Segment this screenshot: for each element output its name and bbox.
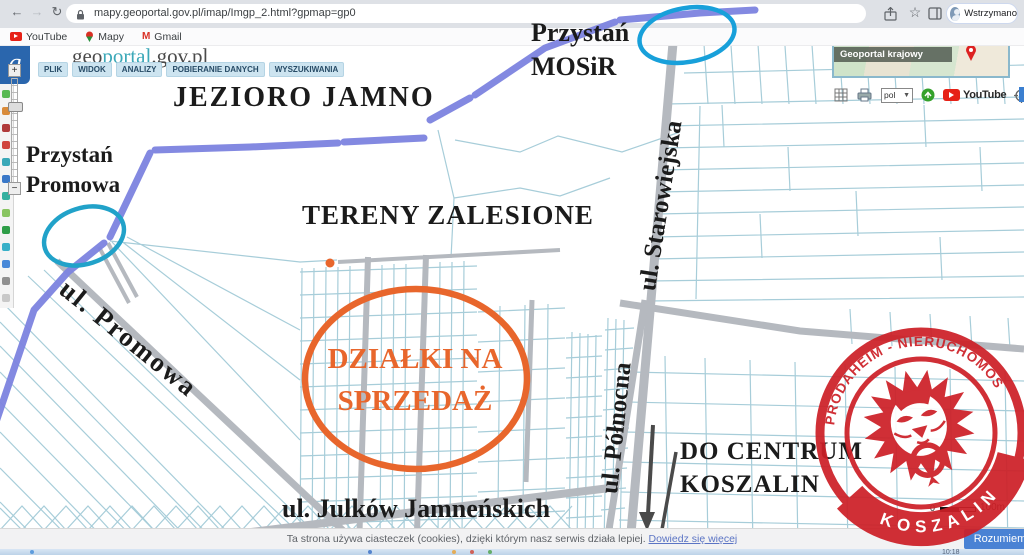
map-canvas[interactable] (0, 0, 1024, 555)
cookie-learn-more-link[interactable]: Dowiedz się więcej (649, 533, 738, 545)
taskbar-icon[interactable] (368, 550, 372, 554)
scale-zero-label: 0 (930, 503, 935, 513)
scale-segment (958, 507, 976, 512)
taskbar-icon[interactable] (470, 550, 474, 554)
taskbar-clock: 10:18 (942, 549, 960, 555)
bookmark-label: Gmail (154, 31, 181, 43)
tool-icon[interactable] (2, 294, 10, 302)
cookie-accept-button[interactable]: Rozumiem (964, 529, 1024, 549)
scale-segment (940, 507, 958, 512)
bookmark-label: Mapy (98, 31, 124, 43)
map-pin-icon (964, 44, 978, 62)
back-icon[interactable]: ← (8, 4, 26, 19)
padlock-icon (76, 9, 85, 20)
language-select[interactable]: pol▼ (881, 88, 913, 103)
cookie-text: Ta strona używa ciasteczek (cookies), dz… (287, 533, 646, 545)
profile-label: Wstrzymano (964, 8, 1017, 19)
gmail-icon: M (142, 31, 150, 42)
os-taskbar[interactable]: 10:18 (0, 549, 1024, 555)
geoportal-menu: PLIK WIDOK ANALIZY POBIERANIE DANYCH WYS… (38, 62, 344, 77)
youtube-link[interactable]: YouTube (943, 89, 1006, 101)
side-panel-icon[interactable] (928, 7, 942, 20)
zoom-handle[interactable] (8, 102, 23, 112)
share-icon[interactable] (884, 7, 897, 21)
layout-grid-icon[interactable] (834, 88, 848, 102)
youtube-label: YouTube (963, 89, 1006, 101)
zoom-in-button[interactable]: + (8, 64, 21, 77)
zoom-out-button[interactable]: − (8, 182, 21, 195)
taskbar-icon[interactable] (488, 550, 492, 554)
url-text[interactable]: mapy.geoportal.gov.pl/imap/Imgp_2.html?g… (94, 7, 356, 19)
bookmark-label: YouTube (26, 31, 67, 43)
scale-max-label: 100m (980, 502, 1005, 513)
tool-icon[interactable] (2, 243, 10, 251)
bookmark-gmail[interactable]: MGmail (142, 31, 182, 43)
zoom-track[interactable] (11, 78, 18, 194)
minimap-label: Geoportal krajowy (834, 47, 952, 62)
reload-icon[interactable]: ↻ (48, 4, 66, 20)
tool-icon[interactable] (2, 260, 10, 268)
language-value: pol (884, 90, 895, 100)
tool-icon[interactable] (2, 277, 10, 285)
taskbar-icon[interactable] (30, 550, 34, 554)
taskbar-icon[interactable] (452, 550, 456, 554)
youtube-icon (10, 32, 22, 41)
cookie-message: Ta strona używa ciasteczek (cookies), dz… (0, 529, 1024, 550)
menu-item-wyszukiwania[interactable]: WYSZUKIWANIA (269, 62, 345, 77)
help-icon[interactable] (921, 88, 935, 102)
forward-icon[interactable]: → (28, 4, 46, 19)
tool-icon[interactable] (2, 90, 10, 98)
toolbar-overflow-button[interactable] (1019, 87, 1024, 102)
tool-icon[interactable] (2, 124, 10, 132)
tool-icon[interactable] (2, 141, 10, 149)
menu-item-analizy[interactable]: ANALIZY (116, 62, 163, 77)
tool-icon[interactable] (2, 226, 10, 234)
cookie-banner: Ta strona używa ciasteczek (cookies), dz… (0, 528, 1024, 550)
bookmarks-bar: YouTube Mapy MGmail (0, 28, 1024, 46)
browser-profile-button[interactable]: Wstrzymano (946, 3, 1018, 24)
bookmark-mapy[interactable]: Mapy (85, 31, 124, 43)
menu-item-plik[interactable]: PLIK (38, 62, 68, 77)
menu-item-pobieranie-danych[interactable]: POBIERANIE DANYCH (166, 62, 264, 77)
map-pin-icon (85, 31, 94, 42)
tool-icon[interactable] (2, 158, 10, 166)
menu-item-widok[interactable]: WIDOK (72, 62, 112, 77)
geoportal-toolbar: pol▼ YouTube ✚ (834, 86, 1024, 104)
print-icon[interactable] (856, 88, 873, 102)
avatar (950, 7, 960, 21)
tool-icon[interactable] (2, 209, 10, 217)
bookmark-star-icon[interactable]: ☆ (906, 4, 924, 21)
youtube-play-icon (943, 89, 960, 101)
bookmark-youtube[interactable]: YouTube (10, 31, 67, 43)
